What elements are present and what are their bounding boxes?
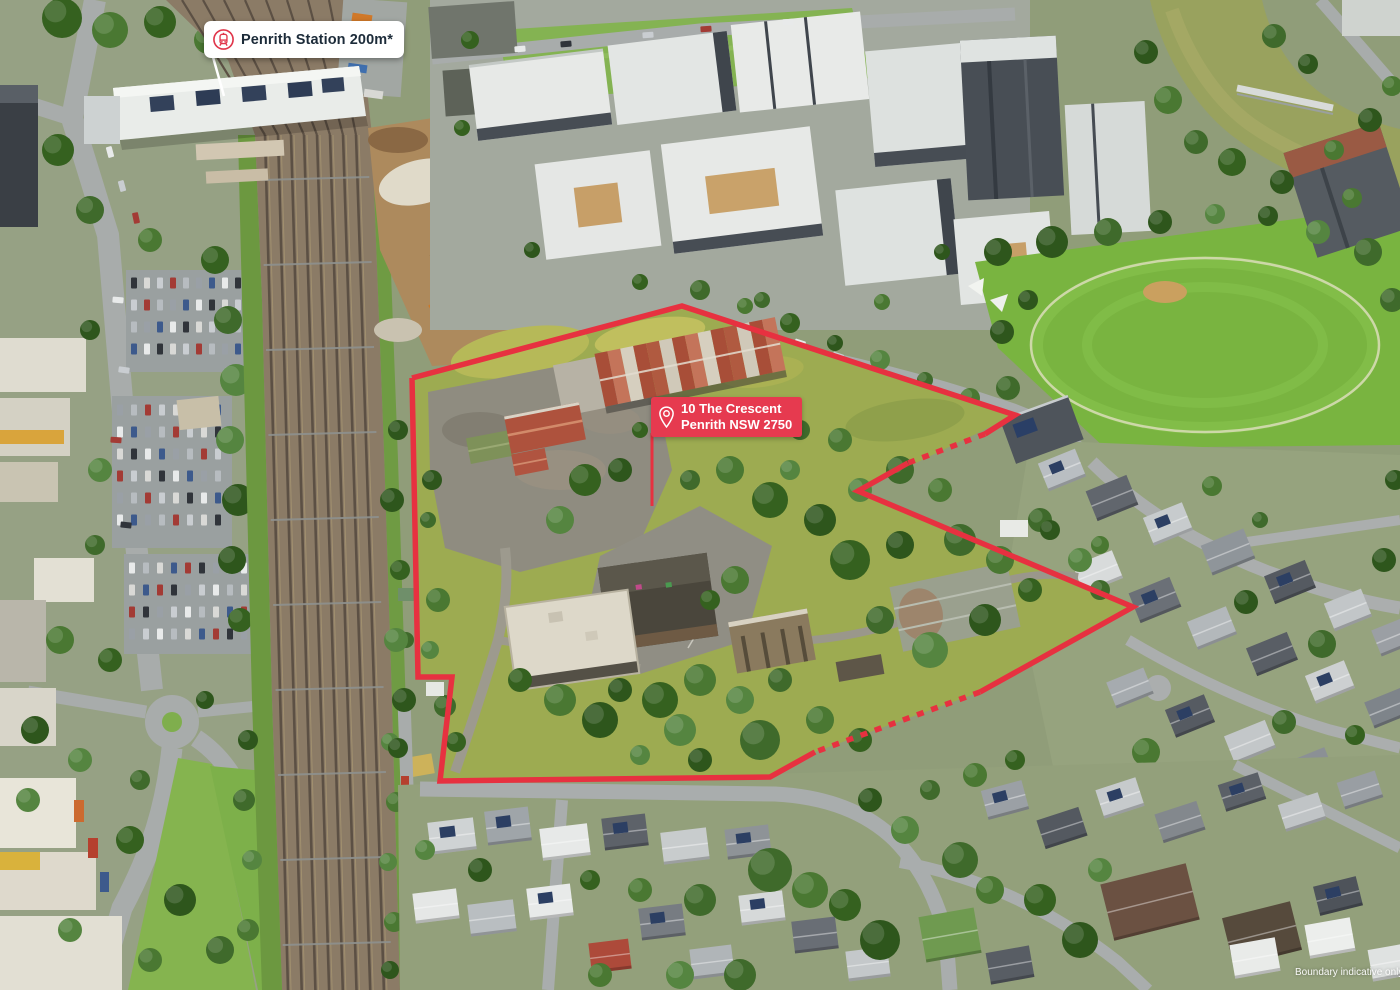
- site-address-badge: 10 The Crescent Penrith NSW 2750: [651, 397, 802, 437]
- site-address-line2: Penrith NSW 2750: [681, 417, 792, 433]
- bottom-suburb: [398, 750, 1400, 990]
- location-pin-icon: [658, 405, 675, 429]
- station-distance-badge: Penrith Station 200m*: [204, 21, 404, 58]
- train-icon: [212, 28, 235, 51]
- aerial-photo: Penrith Station 200m* 10 The Crescent Pe…: [0, 0, 1400, 990]
- site-address-line1: 10 The Crescent: [681, 401, 792, 417]
- station-distance-label: Penrith Station 200m*: [241, 32, 393, 48]
- aerial-photo-scene: [0, 0, 1400, 990]
- boundary-disclaimer: Boundary indicative only: [1295, 967, 1400, 978]
